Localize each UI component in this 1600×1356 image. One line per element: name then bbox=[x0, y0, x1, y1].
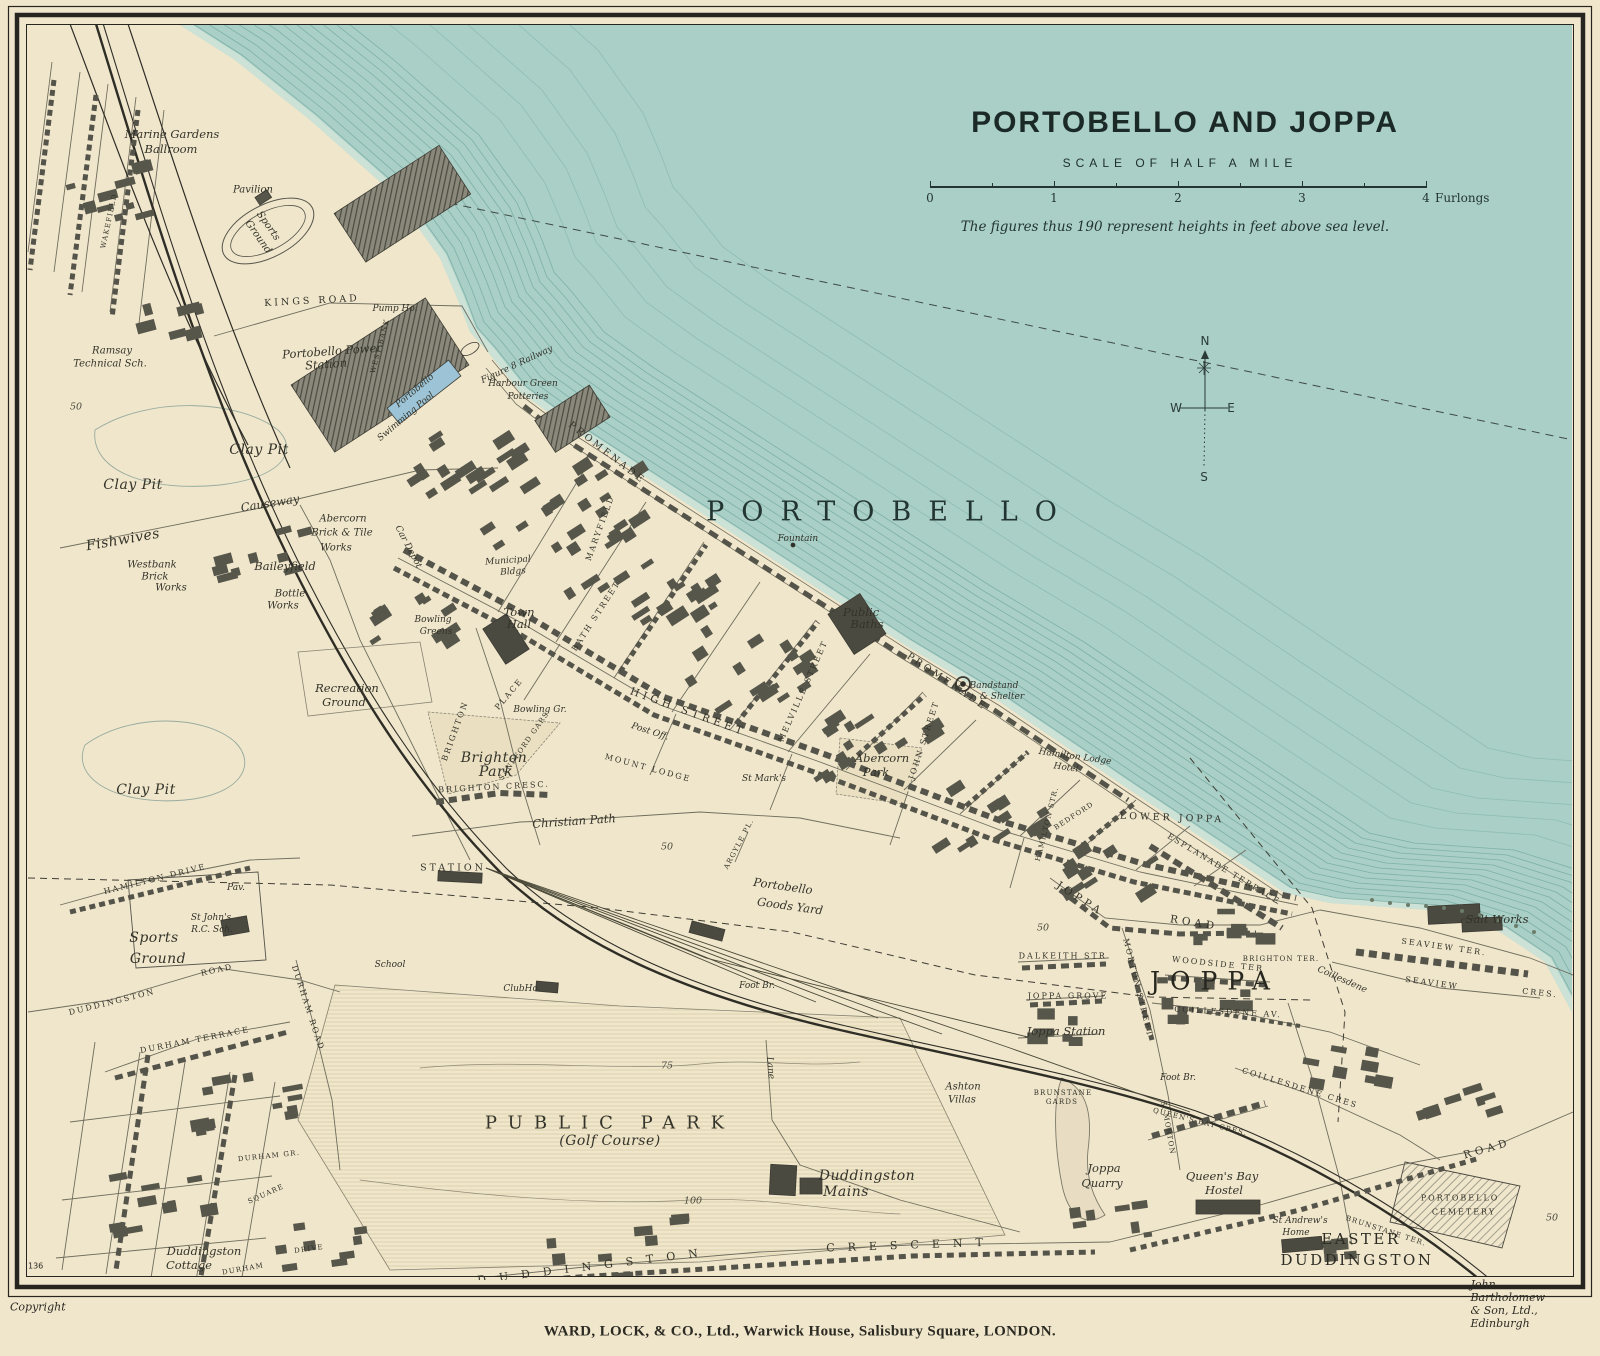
scale-tick-label: 1 bbox=[1050, 191, 1058, 205]
map-sheet: Marine GardensBallroomPavilionSportsGrou… bbox=[0, 0, 1600, 1356]
scale-tick-minor bbox=[1364, 183, 1365, 187]
scale-tick-label: 0 bbox=[926, 191, 934, 205]
copyright-note: Copyright bbox=[10, 1301, 66, 1314]
compass-south-label: S bbox=[1200, 470, 1208, 484]
scale-tick bbox=[1054, 181, 1055, 188]
scale-tick bbox=[1302, 181, 1303, 188]
cartographer-credit: John Bartholomew & Son, Ltd., Edinburgh bbox=[1470, 1278, 1545, 1330]
scale-bar: Furlongs 01234 bbox=[930, 186, 1426, 206]
scale-tick-label: 4 bbox=[1422, 191, 1430, 205]
station-building bbox=[438, 871, 482, 883]
scale-tick bbox=[1426, 181, 1427, 188]
compass-north-label: N bbox=[1201, 334, 1210, 348]
scale-tick-minor bbox=[1116, 183, 1117, 187]
queens-bay-hostel-building bbox=[1196, 1200, 1260, 1214]
publisher-credit: WARD, LOCK, & CO., Ltd., Warwick House, … bbox=[544, 1324, 1056, 1341]
scale-tick-label: 2 bbox=[1174, 191, 1182, 205]
scale-tick bbox=[1178, 181, 1179, 188]
compass-east-label: E bbox=[1227, 401, 1235, 415]
club-house-building bbox=[536, 981, 559, 993]
scale-units-label: Furlongs bbox=[1435, 191, 1489, 205]
scale-tick-label: 3 bbox=[1298, 191, 1306, 205]
duddingston-mains-building bbox=[769, 1164, 797, 1195]
sheet-number: 136 bbox=[28, 1262, 43, 1271]
heights-note: The figures thus 190 represent heights i… bbox=[961, 219, 1389, 235]
scale-tick-minor bbox=[1240, 183, 1241, 187]
fountain-dot bbox=[791, 543, 795, 547]
compass-west-label: W bbox=[1170, 401, 1182, 415]
scale-heading: SCALE OF HALF A MILE bbox=[1063, 156, 1298, 170]
compass-star bbox=[1197, 361, 1211, 375]
map-title: PORTOBELLO AND JOPPA bbox=[971, 106, 1399, 140]
scale-tick-minor bbox=[992, 183, 993, 187]
scale-tick bbox=[930, 181, 931, 188]
